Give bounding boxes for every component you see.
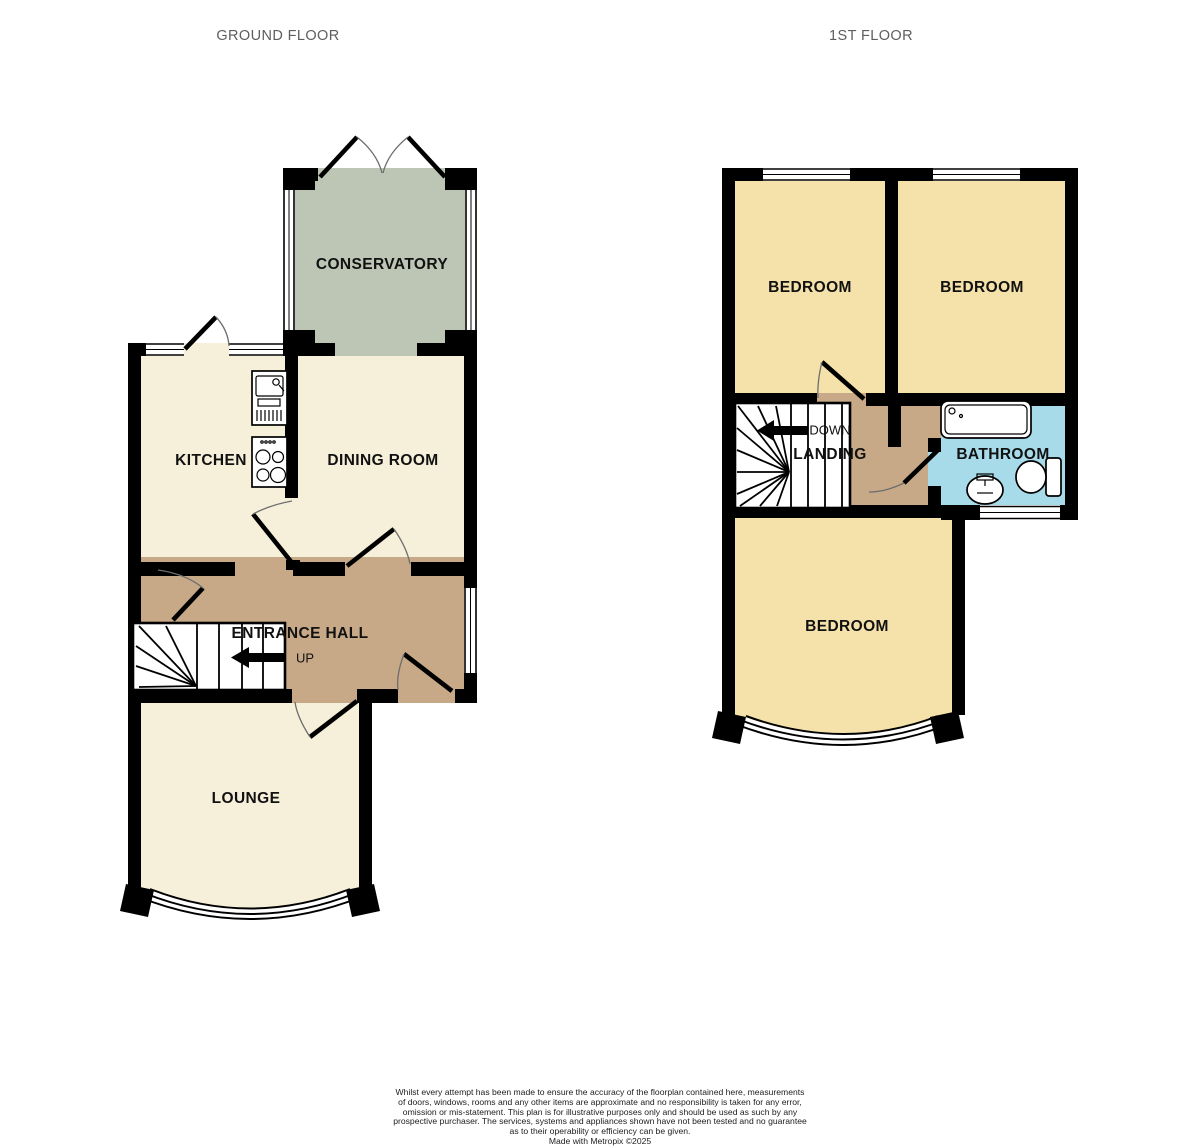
up-label: UP [296, 651, 314, 666]
hall-window [464, 588, 477, 673]
conservatory-window-right [465, 190, 477, 330]
down-label: DOWN [809, 423, 850, 438]
floorplan-drawing [0, 0, 1200, 1148]
bathtub [941, 401, 1031, 438]
bedroom-bottom-label: BEDROOM [805, 618, 889, 636]
floorplan-page: GROUND FLOOR 1ST FLOOR CONSERVATORY KITC… [0, 0, 1200, 1148]
kitchen-window-2 [229, 343, 283, 356]
ground-floor-title: GROUND FLOOR [216, 28, 339, 44]
landing-label: LANDING [793, 446, 866, 464]
entrance-hall-label: ENTRANCE HALL [232, 625, 369, 643]
dining-room-label: DINING ROOM [327, 452, 438, 470]
kitchen-label: KITCHEN [175, 452, 247, 470]
kitchen-window [146, 343, 184, 356]
bedroom-right-label: BEDROOM [940, 279, 1024, 297]
ground-floor-plan [120, 137, 477, 919]
bedroom-left-label: BEDROOM [768, 279, 852, 297]
disclaimer: Whilst every attempt has been made to en… [380, 1088, 820, 1147]
conservatory-label: CONSERVATORY [316, 256, 448, 274]
bedroom-left-window [763, 168, 850, 181]
bedroom-right-window [933, 168, 1020, 181]
bedroom-bottom-floor [735, 505, 952, 717]
bathroom-window [980, 505, 1060, 520]
first-floor-title: 1ST FLOOR [829, 28, 913, 44]
bathroom-label: BATHROOM [956, 446, 1049, 464]
conservatory-window-left [283, 190, 295, 330]
lounge-label: LOUNGE [212, 790, 281, 808]
kitchen-hob [252, 437, 287, 487]
kitchen-sink [252, 371, 287, 425]
